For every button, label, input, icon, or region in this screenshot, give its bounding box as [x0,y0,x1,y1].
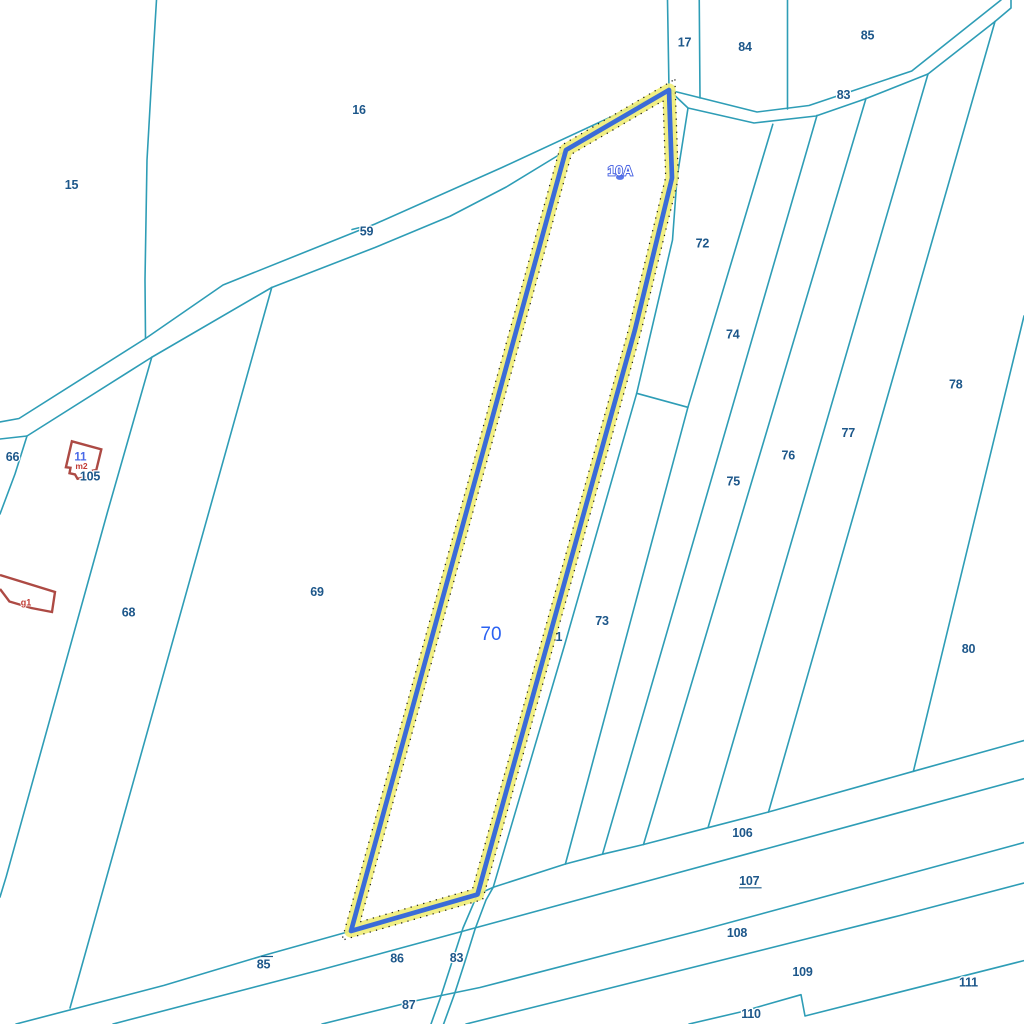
svg-text:109: 109 [792,965,813,979]
svg-text:69: 69 [310,585,324,599]
svg-text:77: 77 [841,426,855,440]
svg-text:15: 15 [65,178,79,192]
svg-text:59: 59 [360,225,374,239]
svg-text:105: 105 [80,470,101,484]
svg-text:107: 107 [739,874,760,888]
svg-text:85: 85 [861,29,875,43]
svg-text:80: 80 [962,642,976,656]
svg-text:87: 87 [402,998,416,1012]
svg-text:72: 72 [696,237,710,251]
svg-text:g1: g1 [21,598,32,608]
svg-text:83: 83 [837,88,851,102]
svg-text:68: 68 [122,606,136,620]
svg-text:83: 83 [450,951,464,965]
svg-text:75: 75 [726,475,740,489]
svg-text:106: 106 [732,826,753,840]
svg-text:74: 74 [726,328,740,342]
svg-text:16: 16 [352,103,366,117]
svg-text:108: 108 [727,926,748,940]
svg-text:110: 110 [741,1007,761,1021]
svg-text:76: 76 [781,449,795,463]
svg-text:17: 17 [678,36,692,50]
svg-text:78: 78 [949,378,963,392]
svg-text:66: 66 [6,450,20,464]
svg-text:84: 84 [738,40,752,54]
svg-text:73: 73 [595,614,609,628]
svg-text:85: 85 [257,958,271,972]
svg-text:70: 70 [480,624,501,645]
svg-text:m2: m2 [75,461,88,471]
svg-text:86: 86 [390,952,404,966]
svg-text:10A: 10A [608,164,634,179]
svg-text:111: 111 [959,976,978,990]
